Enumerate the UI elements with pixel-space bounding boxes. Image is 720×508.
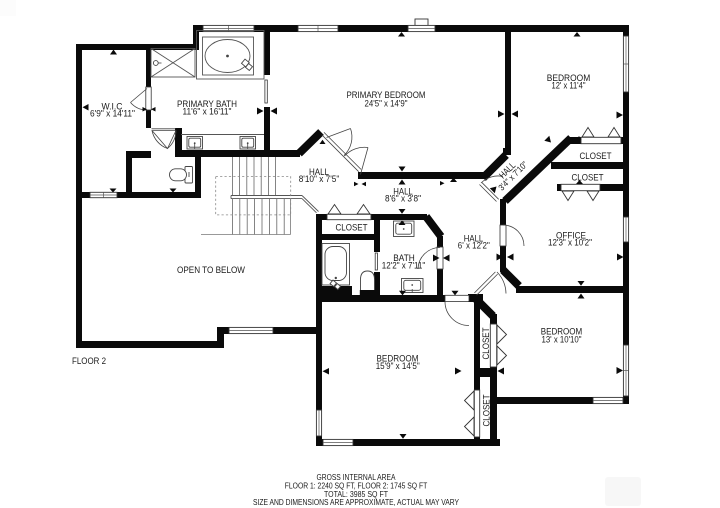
svg-text:CLOSET: CLOSET: [336, 223, 368, 234]
svg-text:13' x 10'10": 13' x 10'10": [542, 334, 582, 344]
svg-text:8'6" x 3'8": 8'6" x 3'8": [385, 194, 421, 204]
svg-text:6'9" x 14'11": 6'9" x 14'11": [90, 109, 135, 119]
svg-text:12' x 11'4": 12' x 11'4": [552, 81, 586, 91]
svg-text:FLOOR 2: FLOOR 2: [72, 356, 106, 367]
svg-text:12'3" x 10'2": 12'3" x 10'2": [548, 238, 592, 248]
svg-text:OPEN TO BELOW: OPEN TO BELOW: [177, 265, 246, 276]
svg-text:CLOSET: CLOSET: [580, 151, 612, 162]
svg-text:8'10" x 7'5": 8'10" x 7'5": [299, 174, 340, 184]
svg-text:24'5" x 14'9": 24'5" x 14'9": [365, 98, 408, 108]
svg-text:15'9" x 14'5": 15'9" x 14'5": [376, 361, 420, 371]
svg-text:6' x 12'2": 6' x 12'2": [458, 241, 490, 251]
svg-text:CLOSET: CLOSET: [572, 173, 604, 184]
svg-text:CLOSET: CLOSET: [482, 394, 493, 426]
svg-text:CLOSET: CLOSET: [481, 327, 492, 359]
svg-text:12'2" x 7'11": 12'2" x 7'11": [382, 261, 426, 271]
svg-text:SIZE AND DIMENSIONS ARE APPROX: SIZE AND DIMENSIONS ARE APPROXIMATE, ACT…: [253, 498, 460, 507]
svg-text:11'6" x 16'11": 11'6" x 16'11": [183, 106, 232, 116]
